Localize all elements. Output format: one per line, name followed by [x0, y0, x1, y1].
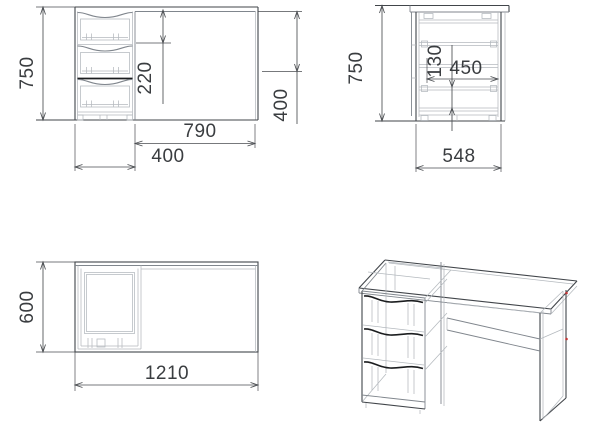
- dim-front-top-to-drawer: 220: [135, 10, 171, 104]
- technical-drawing-sheet: 750 220 790 400: [0, 0, 600, 428]
- vertex-marker-red-bottom: [565, 338, 568, 341]
- dim-top-width-label: 1210: [145, 363, 189, 384]
- dim-front-knee-width-label: 790: [183, 121, 216, 142]
- dim-front-panel-height-label: 400: [271, 88, 292, 121]
- dim-side-drawer-height-label: 130: [425, 44, 446, 77]
- front-view: 750 220 790 400: [17, 7, 302, 171]
- dim-side-depth: 548: [416, 124, 501, 172]
- iso-modesty-panel: [447, 318, 563, 351]
- dim-front-panel-height: 400: [262, 12, 302, 125]
- dim-front-top-to-drawer-label: 220: [135, 61, 156, 94]
- top-view-pedestal-plan: [78, 266, 141, 350]
- isometric-view: [359, 260, 577, 421]
- iso-pedestal: [362, 262, 451, 414]
- iso-drawers: [363, 266, 447, 394]
- dim-side-height-label: 750: [346, 51, 367, 84]
- dim-side-drawer-depth-label: 450: [449, 58, 482, 79]
- iso-desktop: [359, 260, 577, 314]
- vertex-marker-red-top: [565, 292, 568, 295]
- side-view: 750 130 450 548: [346, 6, 509, 173]
- dim-top-width: 1210: [75, 352, 258, 391]
- dim-top-depth-label: 600: [17, 290, 38, 323]
- dim-side-depth-label: 548: [442, 146, 475, 167]
- dim-front-knee-width: 790: [135, 121, 255, 148]
- top-view-outline: [36, 262, 258, 352]
- dim-front-height-label: 750: [17, 56, 38, 89]
- iso-right-panel: [540, 290, 568, 421]
- top-view: 600 1210: [17, 262, 258, 391]
- front-view-drawers: [78, 13, 133, 121]
- dim-front-height: 750: [17, 7, 46, 120]
- dim-top-depth: 600: [17, 262, 46, 352]
- dim-front-pedestal-width-label: 400: [151, 146, 184, 167]
- dim-front-pedestal-width: 400: [75, 124, 185, 171]
- front-view-desk-outline: [36, 7, 302, 120]
- desk-drawing-svg: 750 220 790 400: [0, 0, 600, 428]
- dim-side-height: 750: [346, 6, 385, 122]
